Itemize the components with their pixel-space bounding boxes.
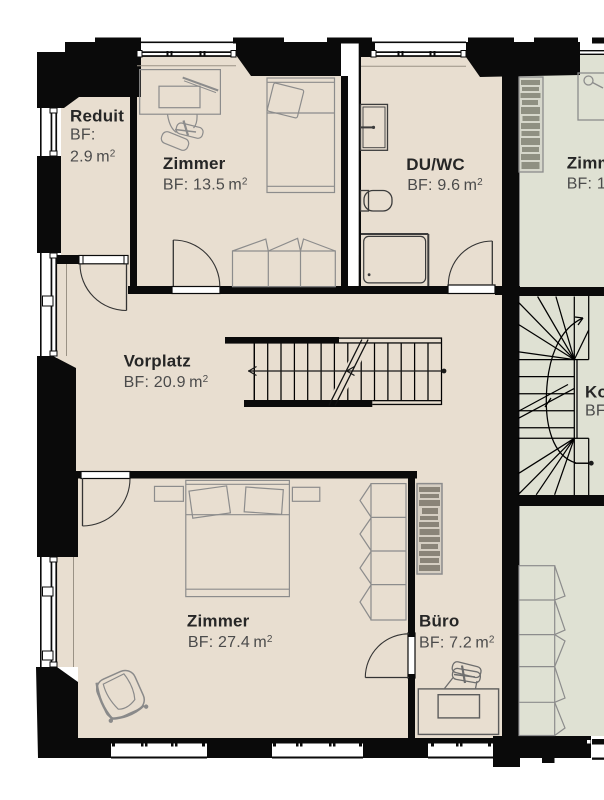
svg-text:Vorplatz: Vorplatz — [124, 352, 191, 371]
svg-text:BF: 7.2 m2: BF: 7.2 m2 — [419, 635, 495, 652]
svg-text:Korridor: Korridor — [585, 383, 604, 402]
svg-text:BF:: BF: — [70, 127, 96, 144]
svg-text:BF: 27.4 m2: BF: 27.4 m2 — [188, 634, 273, 651]
svg-text:DU/WC: DU/WC — [406, 155, 465, 174]
svg-text:Zimmer: Zimmer — [187, 612, 250, 631]
svg-text:BF: 13.5 m2: BF: 13.5 m2 — [163, 177, 248, 194]
svg-text:Zimmer: Zimmer — [567, 154, 604, 173]
svg-text:BF: 9.6 m2: BF: 9.6 m2 — [407, 177, 483, 194]
svg-text:Zimmer: Zimmer — [163, 154, 226, 173]
svg-text:BF: 4: BF: 4 — [585, 403, 604, 420]
svg-text:2.9 m2: 2.9 m2 — [70, 149, 116, 166]
svg-text:BF: 20.9 m2: BF: 20.9 m2 — [124, 374, 209, 391]
svg-text:Büro: Büro — [419, 612, 459, 631]
svg-text:Reduit: Reduit — [70, 107, 124, 126]
svg-text:BF: 14: BF: 14 — [567, 176, 604, 193]
